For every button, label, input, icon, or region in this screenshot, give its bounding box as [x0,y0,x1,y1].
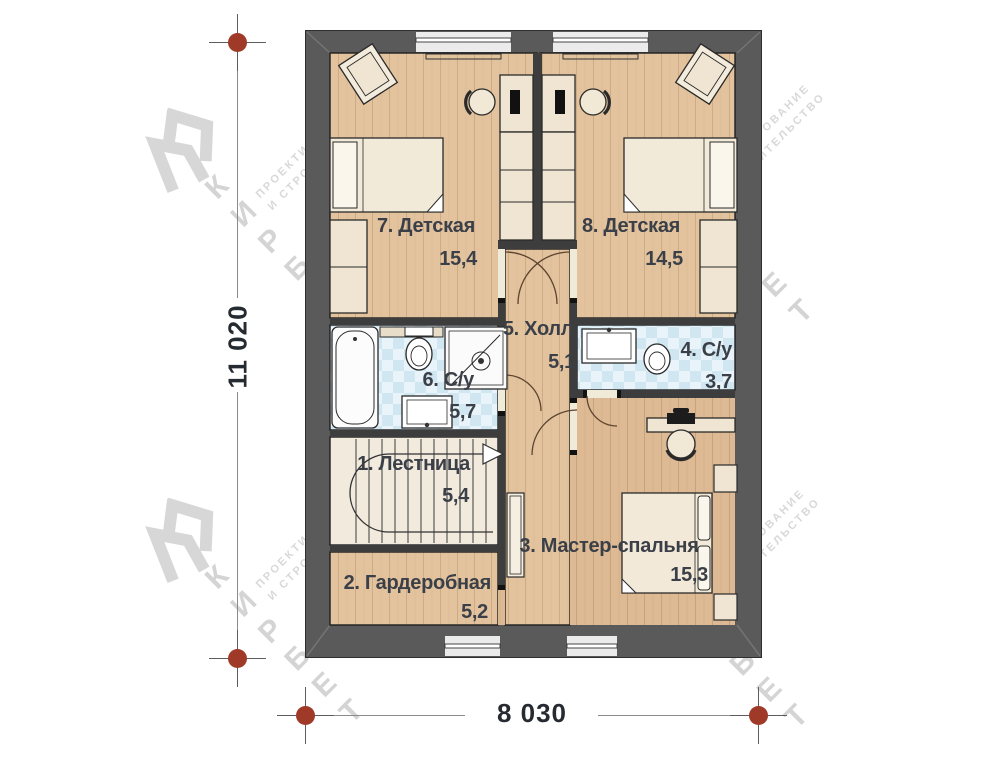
room-label-su4: 4. С/у [648,337,732,363]
room-label-detskaya7: 7. Детская [350,213,475,239]
closet [542,132,575,240]
closet [500,132,533,240]
room-label-master: 3. Мастер-спальня [508,533,710,559]
office-chair [469,89,495,115]
office-chair [580,89,606,115]
room-area-su4: 3,7 [648,369,732,395]
room-label-hall: 5. Холл [496,316,580,342]
dimension-dot [749,706,768,725]
sink [582,329,636,363]
room-label-lestnitsa: 1. Лестница [331,451,470,477]
room-label-detskaya8: 8. Детская [582,213,712,239]
nightstand [714,594,737,620]
room-area-hall: 5,1 [495,349,575,375]
room-area-su6: 5,7 [398,399,476,425]
dimension-width: 8 030 [462,698,602,729]
dimension-line-vertical [237,392,238,658]
room-area-detskaya8: 14,5 [565,246,683,272]
dimension-height: 11 020 [192,300,284,392]
room-area-detskaya7: 15,4 [355,246,477,272]
room-label-garderobnaya: 2. Гардеробная [316,570,491,596]
dimension-line-vertical [237,42,238,298]
kirbet-logo-icon [119,482,249,612]
room-area-master: 15,3 [560,562,708,588]
bathtub [332,327,378,428]
toilet [406,338,432,370]
dimension-dot [228,33,247,52]
dimension-dot [228,649,247,668]
room-label-su6: 6. С/у [398,367,474,393]
room-area-garderobnaya: 5,2 [336,599,488,625]
room-area-lestnitsa: 5,4 [331,483,469,509]
nightstand [714,465,737,492]
kirbet-logo-icon [119,92,249,222]
dimension-dot [296,706,315,725]
floor-plan-page: КИРБЕТ ПРОЕКТИРОВАНИЕ И СТРОИТЕЛЬСТВО КИ… [0,0,1000,779]
